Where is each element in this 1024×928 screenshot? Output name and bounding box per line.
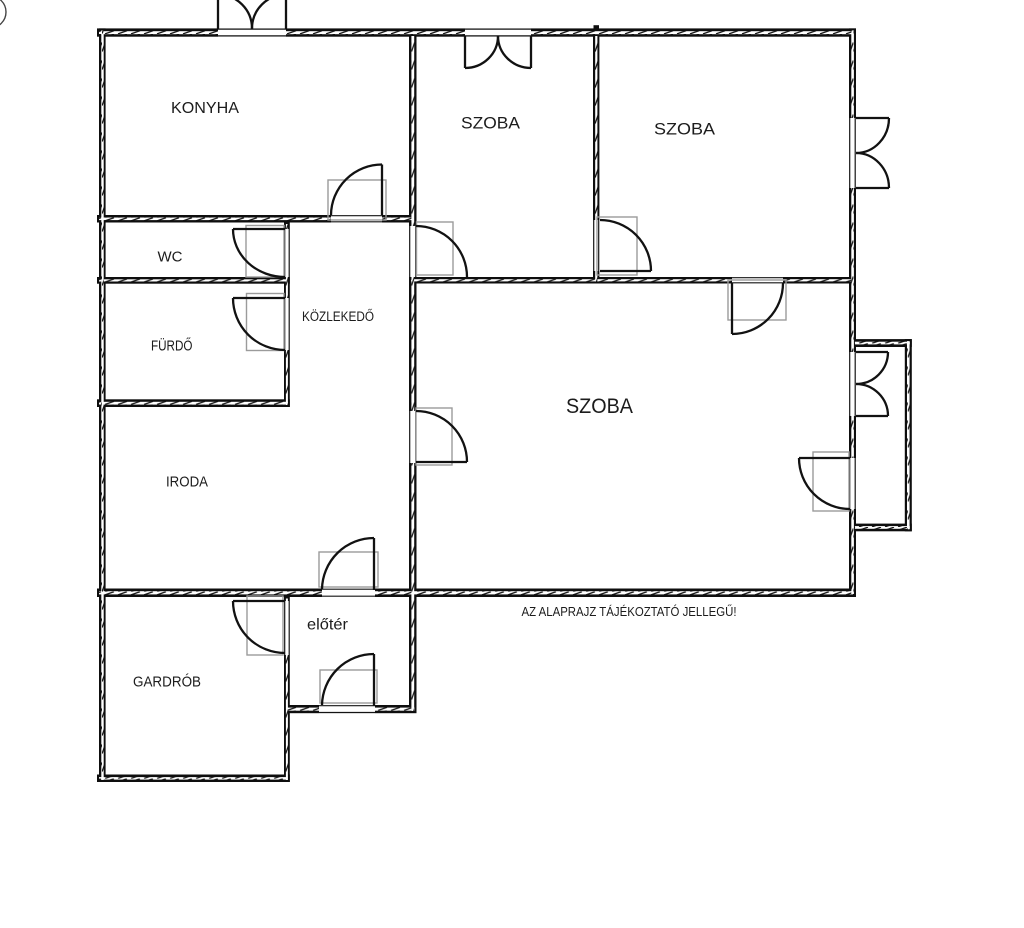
svg-text:FÜRDŐ: FÜRDŐ — [151, 337, 193, 355]
svg-text:GARDRÓB: GARDRÓB — [133, 674, 201, 691]
svg-text:AZ ALAPRAJZ TÁJÉKOZTATÓ JELLEG: AZ ALAPRAJZ TÁJÉKOZTATÓ JELLEGŰ! — [522, 604, 737, 619]
svg-text:IRODA: IRODA — [166, 474, 208, 491]
svg-text:SZOBA: SZOBA — [566, 394, 634, 418]
svg-text:előtér: előtér — [307, 617, 349, 634]
svg-text:KÖZLEKEDŐ: KÖZLEKEDŐ — [302, 309, 374, 324]
svg-text:SZOBA: SZOBA — [654, 120, 716, 139]
svg-text:KONYHA: KONYHA — [171, 100, 240, 117]
svg-text:SZOBA: SZOBA — [461, 115, 520, 133]
svg-text:WC: WC — [158, 249, 183, 266]
